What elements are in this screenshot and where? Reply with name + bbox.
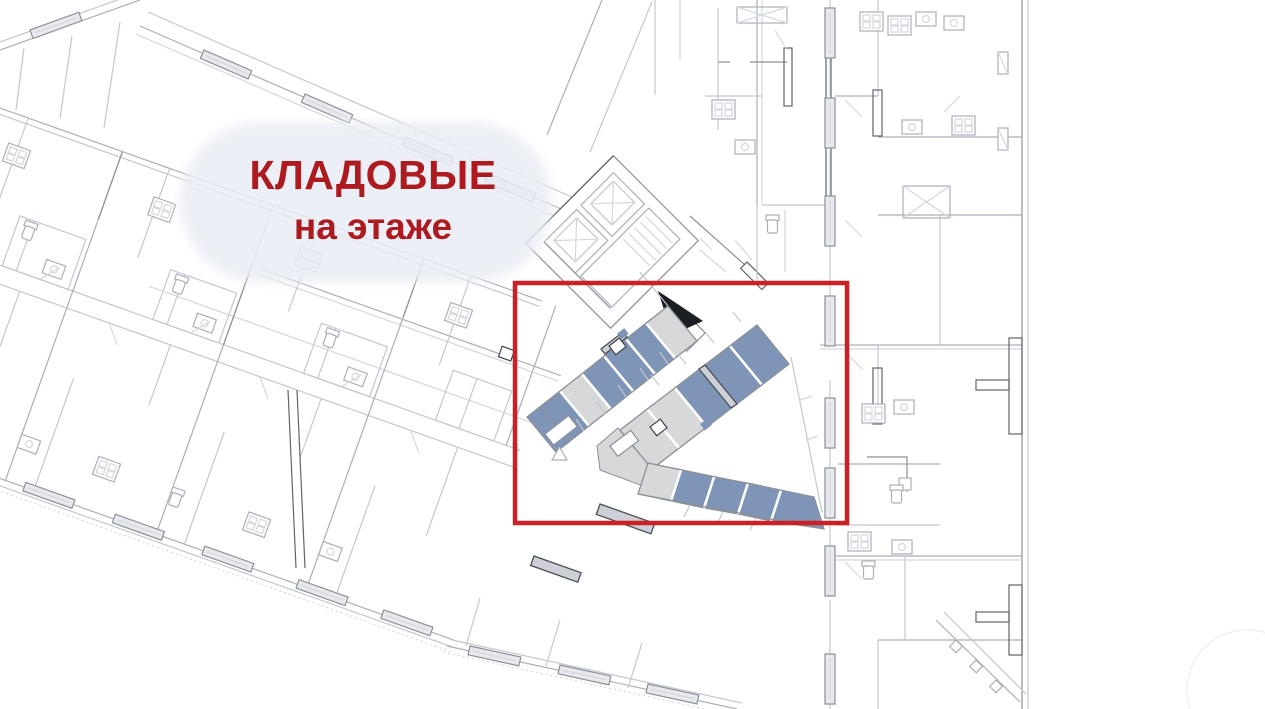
stove-icon (862, 404, 885, 423)
right-apartments (820, 0, 1028, 709)
shaft-wall (784, 48, 792, 106)
window-sill (825, 296, 835, 346)
floorplan-page: КЛАДОВЫЕ на этаже (0, 0, 1265, 709)
vent-shaft-icon (998, 128, 1008, 150)
stove-icon (712, 100, 735, 119)
window-sill (825, 196, 835, 246)
stove-icon (2, 143, 30, 169)
door-leaf (741, 262, 769, 290)
window-sill (30, 12, 82, 38)
window-sill (825, 546, 835, 596)
window-sill (646, 684, 699, 704)
window-sill (23, 482, 75, 508)
sink-icon (944, 16, 964, 30)
callout-title-line2: на этаже (182, 204, 564, 250)
window-sill (531, 556, 581, 582)
stove-icon (860, 12, 883, 31)
stove-icon (848, 532, 871, 551)
bottom-facade-segment (443, 504, 742, 709)
stove-icon (243, 512, 271, 538)
window-sill (112, 514, 164, 540)
stove-icon (445, 303, 473, 329)
facade-pier (1009, 338, 1022, 434)
sink-icon (735, 140, 755, 154)
window-sill (596, 504, 654, 534)
toilet-icon (321, 328, 339, 349)
window-sill (825, 398, 835, 448)
toilet-icon (171, 274, 189, 295)
window-sill (558, 665, 611, 685)
toilet-icon (862, 561, 875, 579)
middle-apartments (700, 0, 831, 280)
toilet-icon (890, 485, 903, 503)
floor-plan-svg (0, 0, 1265, 709)
sink-icon (894, 400, 914, 414)
toilet-icon (766, 215, 779, 233)
window-sill (825, 654, 835, 704)
vent-shaft-icon (998, 52, 1008, 74)
storage-callout: КЛАДОВЫЕ на этаже (182, 150, 564, 251)
left-end-cap (0, 0, 140, 128)
expansion-joint-wall (288, 390, 305, 568)
facade-pier (1009, 585, 1022, 655)
toilet-icon (20, 220, 38, 241)
callout-title-line1: КЛАДОВЫЕ (182, 150, 564, 201)
sink-icon (916, 12, 936, 26)
door-icon (498, 346, 514, 361)
sink-icon (902, 120, 922, 134)
window-sill (825, 468, 835, 518)
sink-icon (17, 434, 41, 454)
stove-icon (888, 16, 911, 35)
stove-icon (93, 456, 121, 482)
stove-icon (952, 116, 975, 135)
window-sill (202, 546, 254, 572)
window-sill (825, 98, 835, 148)
watermark-circle (1187, 630, 1265, 709)
sink-icon (319, 542, 343, 562)
shaft-wall (873, 90, 882, 136)
sink-icon (892, 540, 912, 554)
window-sill (381, 610, 433, 636)
window-sill (825, 8, 835, 58)
